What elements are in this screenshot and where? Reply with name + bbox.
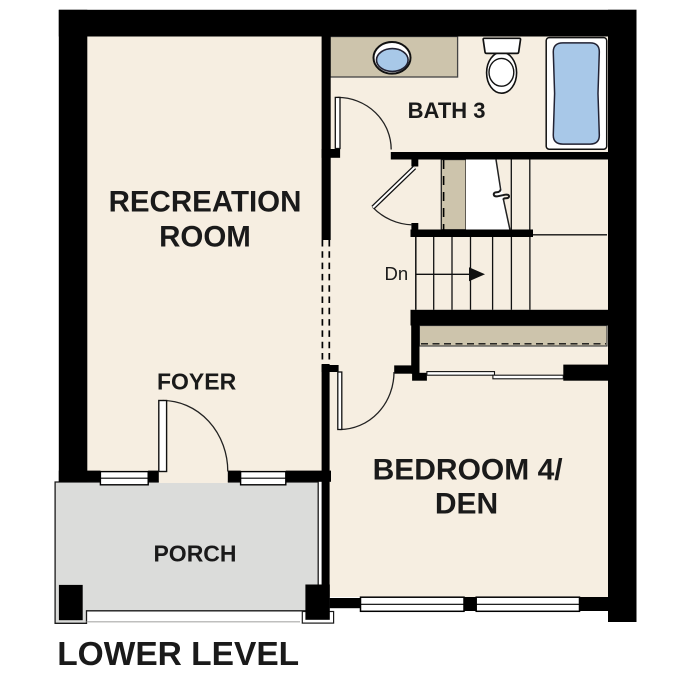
svg-text:DEN: DEN <box>435 488 498 521</box>
svg-text:RECREATION: RECREATION <box>109 186 302 219</box>
svg-text:FOYER: FOYER <box>157 369 237 395</box>
svg-text:ROOM: ROOM <box>159 221 251 254</box>
svg-text:LOWER LEVEL: LOWER LEVEL <box>57 636 299 673</box>
svg-text:Dn: Dn <box>385 263 409 284</box>
svg-text:PORCH: PORCH <box>153 540 236 566</box>
svg-text:BATH 3: BATH 3 <box>408 98 486 123</box>
svg-text:BEDROOM 4/: BEDROOM 4/ <box>373 454 564 487</box>
